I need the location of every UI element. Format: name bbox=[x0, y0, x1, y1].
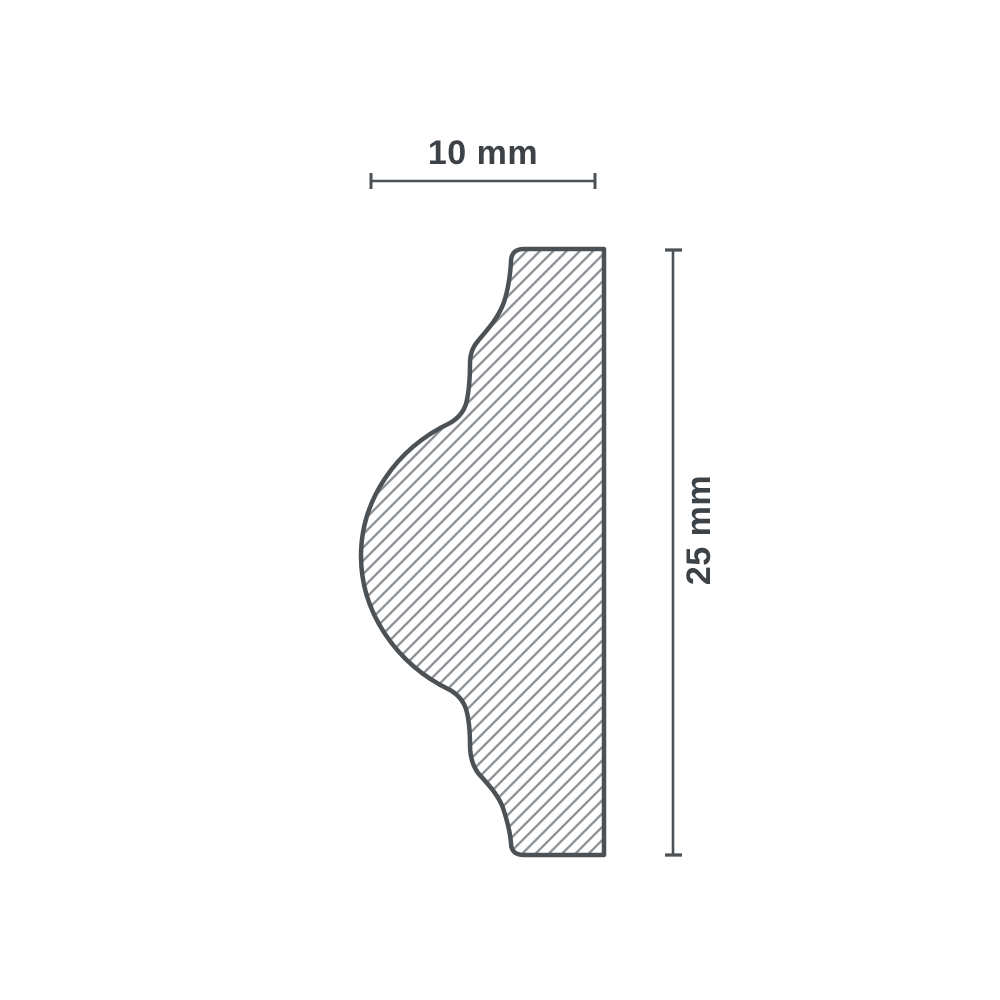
height-dimension-label: 25 mm bbox=[679, 450, 719, 610]
molding-cross-section bbox=[361, 249, 604, 855]
width-dimension-label: 10 mm bbox=[371, 134, 595, 172]
width-dimension bbox=[371, 173, 595, 189]
molding-profile-diagram: 10 mm 25 mm bbox=[0, 0, 1000, 1000]
